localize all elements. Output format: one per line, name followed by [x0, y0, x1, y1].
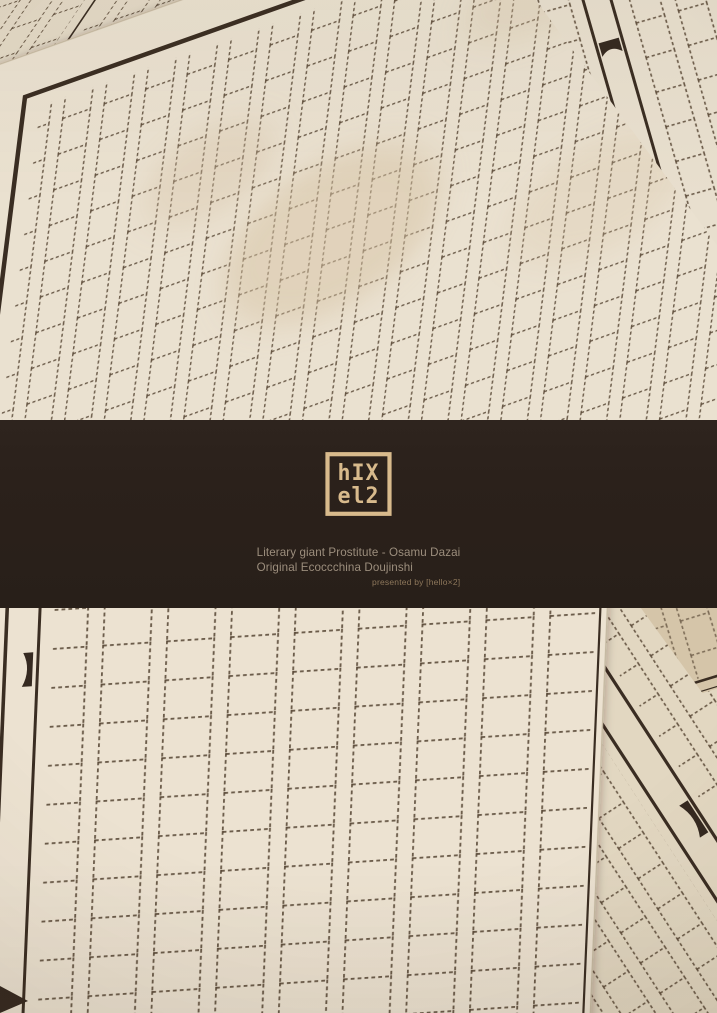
logo-text-bottom: el2: [338, 484, 380, 509]
doujinshi-back-cover: hIX el2 Literary giant Prostitute - Osam…: [0, 0, 717, 1013]
book-title: Literary giant Prostitute - Osamu Dazai: [257, 545, 461, 560]
edition-line: Original Ecoccchina Doujinshi: [257, 560, 461, 575]
back-cover-band: hIX el2 Literary giant Prostitute - Osam…: [0, 420, 717, 608]
hix-el2-logo-icon: hIX el2: [325, 452, 392, 516]
logo-text-top: hIX: [338, 461, 380, 486]
band-text-block: Literary giant Prostitute - Osamu Dazai …: [257, 545, 461, 588]
credit-line: presented by [hello×2]: [257, 577, 461, 588]
